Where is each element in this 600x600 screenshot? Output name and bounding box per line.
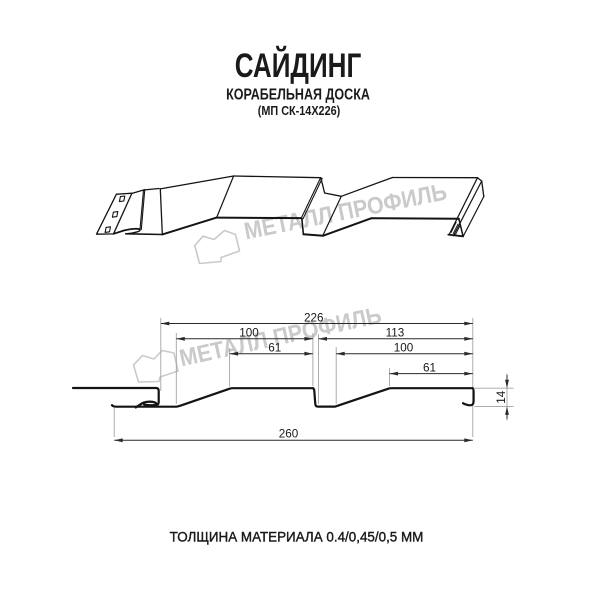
svg-text:100: 100: [239, 327, 259, 340]
svg-text:ТОЛЩИНА МАТЕРИАЛА 0.4/0,45/0,5: ТОЛЩИНА МАТЕРИАЛА 0.4/0,45/0,5 ММ: [170, 530, 424, 546]
svg-text:113: 113: [386, 327, 405, 340]
svg-text:61: 61: [268, 342, 281, 355]
svg-text:226: 226: [304, 311, 324, 324]
svg-text:100: 100: [394, 342, 414, 355]
svg-text:(МП СК-14Х226): (МП СК-14Х226): [258, 103, 341, 118]
svg-text:14: 14: [495, 390, 508, 404]
svg-text:61: 61: [423, 361, 436, 374]
svg-text:САЙДИНГ: САЙДИНГ: [235, 45, 362, 85]
svg-text:КОРАБЕЛЬНАЯ ДОСКА: КОРАБЕЛЬНАЯ ДОСКА: [226, 87, 370, 104]
svg-text:260: 260: [279, 427, 299, 440]
